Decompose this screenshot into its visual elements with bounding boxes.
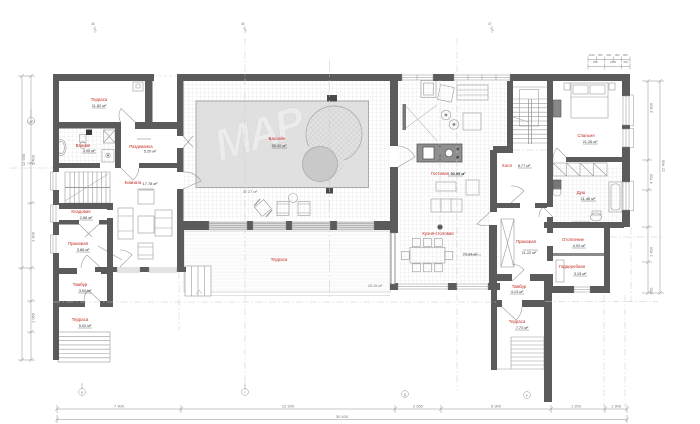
svg-text:21.26 м²: 21.26 м² (583, 139, 598, 144)
svg-text:Терраса: Терраса (72, 317, 89, 322)
svg-text:11.22 м²: 11.22 м² (522, 250, 537, 255)
svg-text:8.77 м²: 8.77 м² (518, 163, 531, 168)
svg-text:12 400: 12 400 (661, 159, 666, 172)
svg-text:Отопление: Отопление (562, 237, 585, 242)
svg-text:2 650: 2 650 (413, 404, 424, 409)
svg-text:47: 47 (488, 22, 492, 26)
svg-text:3.15 м²: 3.15 м² (574, 271, 587, 276)
svg-text:11.46 м²: 11.46 м² (581, 196, 596, 201)
svg-text:11.82 м²: 11.82 м² (92, 103, 107, 108)
svg-text:д: д (404, 392, 406, 396)
svg-text:Гостиная: Гостиная (431, 171, 450, 176)
svg-text:Гардеробная: Гардеробная (559, 264, 586, 269)
svg-text:3 900: 3 900 (649, 102, 654, 113)
svg-text:45: 45 (91, 22, 95, 26)
svg-text:12 930: 12 930 (21, 153, 26, 166)
svg-text:4.00 м²: 4.00 м² (573, 243, 586, 248)
svg-text:Тамбур: Тамбур (73, 282, 88, 287)
svg-text:Душ: Душ (577, 190, 586, 195)
svg-text:е: е (526, 393, 528, 397)
svg-text:в: в (81, 390, 83, 394)
svg-text:7.70 м²: 7.70 м² (516, 325, 529, 330)
svg-text:Терраса: Терраса (509, 319, 526, 324)
svg-text:3.88 м²: 3.88 м² (77, 247, 90, 252)
svg-text:1 460: 1 460 (649, 246, 654, 257)
svg-text:30.95 м²: 30.95 м² (451, 171, 467, 176)
svg-text:46: 46 (241, 22, 245, 26)
svg-text:Терраса: Терраса (91, 97, 108, 102)
svg-text:5.20 м²: 5.20 м² (144, 149, 157, 154)
svg-text:Кухня-столовая: Кухня-столовая (422, 231, 454, 236)
svg-text:900: 900 (607, 53, 612, 57)
svg-text:4 760: 4 760 (649, 173, 654, 184)
svg-text:5.02 м²: 5.02 м² (79, 323, 92, 328)
svg-text:20.24 м²: 20.24 м² (463, 252, 478, 257)
svg-text:Спальня: Спальня (577, 133, 595, 138)
svg-text:Холл: Холл (502, 163, 513, 168)
svg-text:Терраса: Терраса (271, 257, 288, 262)
svg-text:7 900: 7 900 (114, 404, 125, 409)
svg-text:1800: 1800 (610, 60, 617, 64)
svg-text:950: 950 (624, 60, 629, 64)
svg-text:3.95 м²: 3.95 м² (83, 148, 96, 153)
svg-text:50.00 м²: 50.00 м² (272, 143, 287, 148)
svg-text:950: 950 (593, 60, 598, 64)
svg-text:2.88 м²: 2.88 м² (80, 215, 93, 220)
svg-text:1 306: 1 306 (611, 404, 622, 409)
svg-text:47.27 м²: 47.27 м² (243, 190, 258, 194)
svg-text:17.78 м²: 17.78 м² (143, 181, 158, 186)
svg-text:3.00 м²: 3.00 м² (79, 288, 92, 293)
svg-text:6 300: 6 300 (491, 404, 502, 409)
svg-text:5 400: 5 400 (31, 154, 36, 165)
svg-text:1 060: 1 060 (31, 312, 36, 323)
svg-text:950: 950 (615, 53, 620, 57)
svg-text:Прихожая: Прихожая (516, 239, 537, 244)
svg-text:860: 860 (649, 287, 654, 294)
svg-text:Кладовая: Кладовая (71, 209, 91, 214)
svg-text:Бассейн: Бассейн (269, 136, 286, 141)
svg-text:30 400: 30 400 (336, 414, 349, 419)
svg-text:12 300: 12 300 (282, 404, 295, 409)
svg-text:1 400: 1 400 (31, 231, 36, 242)
svg-text:Прихожая: Прихожая (68, 241, 89, 246)
svg-text:1: 1 (30, 119, 32, 123)
svg-text:1 200: 1 200 (571, 404, 582, 409)
svg-text:950: 950 (598, 53, 603, 57)
svg-text:Комната: Комната (125, 180, 142, 185)
svg-text:43.15 м²: 43.15 м² (368, 284, 383, 288)
svg-text:900: 900 (623, 53, 628, 57)
svg-text:4.13 м²: 4.13 м² (511, 289, 524, 294)
svg-text:1010: 1010 (589, 53, 596, 57)
